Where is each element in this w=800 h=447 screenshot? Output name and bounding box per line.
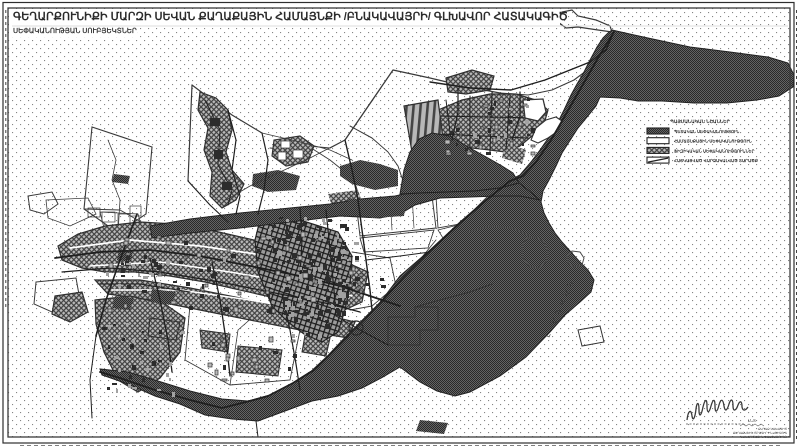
svg-text:ԼՆՏ: ԼՆՏ [748, 418, 756, 423]
svg-text:ՖԻԶԻԿԱԿԱՆ ՍԵՓԱԿԱՆՈՒԹՅՈՒՆՆԵՐ: ՖԻԶԻԿԱԿԱՆ ՍԵՓԱԿԱՆՈՒԹՅՈՒՆՆԵՐ [674, 148, 755, 153]
svg-text:ՊԱՅՄԱՆԱԿԱՆ ՆՇԱՆՆԵՐ: ՊԱՅՄԱՆԱԿԱՆ ՆՇԱՆՆԵՐ [670, 119, 730, 124]
svg-text:ՍԵՓԱԿԱՆՈՒԹՅԱՆ ՍՈՒԲՅԵԿՏՆԵՐ: ՍԵՓԱԿԱՆՈՒԹՅԱՆ ՍՈՒԲՅԵԿՏՆԵՐ [13, 27, 137, 35]
svg-text:ՀԱՄԱՅՆՔԱՅԻՆ ՍԵՓԱԿԱՆՈՒԹՅՈՒՆ: ՀԱՄԱՅՆՔԱՅԻՆ ՍԵՓԱԿԱՆՈՒԹՅՈՒՆ [674, 139, 752, 144]
svg-text:ԳԵՂԱՐՔՈՒՆԻՔԻ ՄԱՐԶԻ ՍԵՎԱՆ ՔԱՂԱՔ: ԳԵՂԱՐՔՈՒՆԻՔԻ ՄԱՐԶԻ ՍԵՎԱՆ ՔԱՂԱՔԱՅԻՆ ՀԱՄԱՅ… [13, 11, 568, 23]
svg-text:ՀԱՏԿԱՑՎԱԾ ՎԱՐՁԱԿԱԼՎԱԾ ՏԱՐԱԾՔ: ՀԱՏԿԱՑՎԱԾ ՎԱՐՁԱԿԱԼՎԱԾ ՏԱՐԱԾՔ [674, 158, 758, 163]
svg-text:ՊԵՏԱԿԱՆ ՍԵՓԱԿԱՆՈՒԹՅՈՒՆ: ՊԵՏԱԿԱՆ ՍԵՓԱԿԱՆՈՒԹՅՈՒՆ [674, 129, 739, 134]
